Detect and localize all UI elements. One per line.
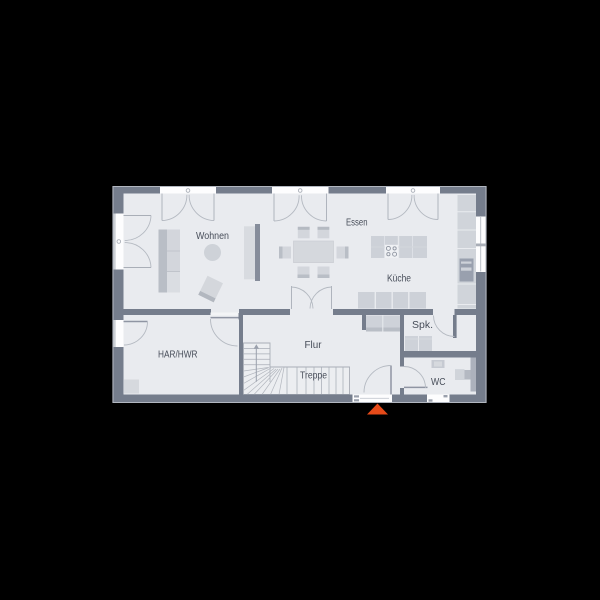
svg-text:Treppe: Treppe: [300, 371, 327, 382]
svg-text:Spk.: Spk.: [412, 320, 433, 331]
svg-text:Küche: Küche: [387, 273, 411, 285]
svg-text:Essen: Essen: [346, 216, 368, 228]
svg-text:Wohnen: Wohnen: [196, 230, 229, 242]
svg-text:Flur: Flur: [305, 339, 322, 351]
svg-text:HAR/HWR: HAR/HWR: [158, 350, 198, 361]
svg-text:WC: WC: [431, 377, 446, 388]
